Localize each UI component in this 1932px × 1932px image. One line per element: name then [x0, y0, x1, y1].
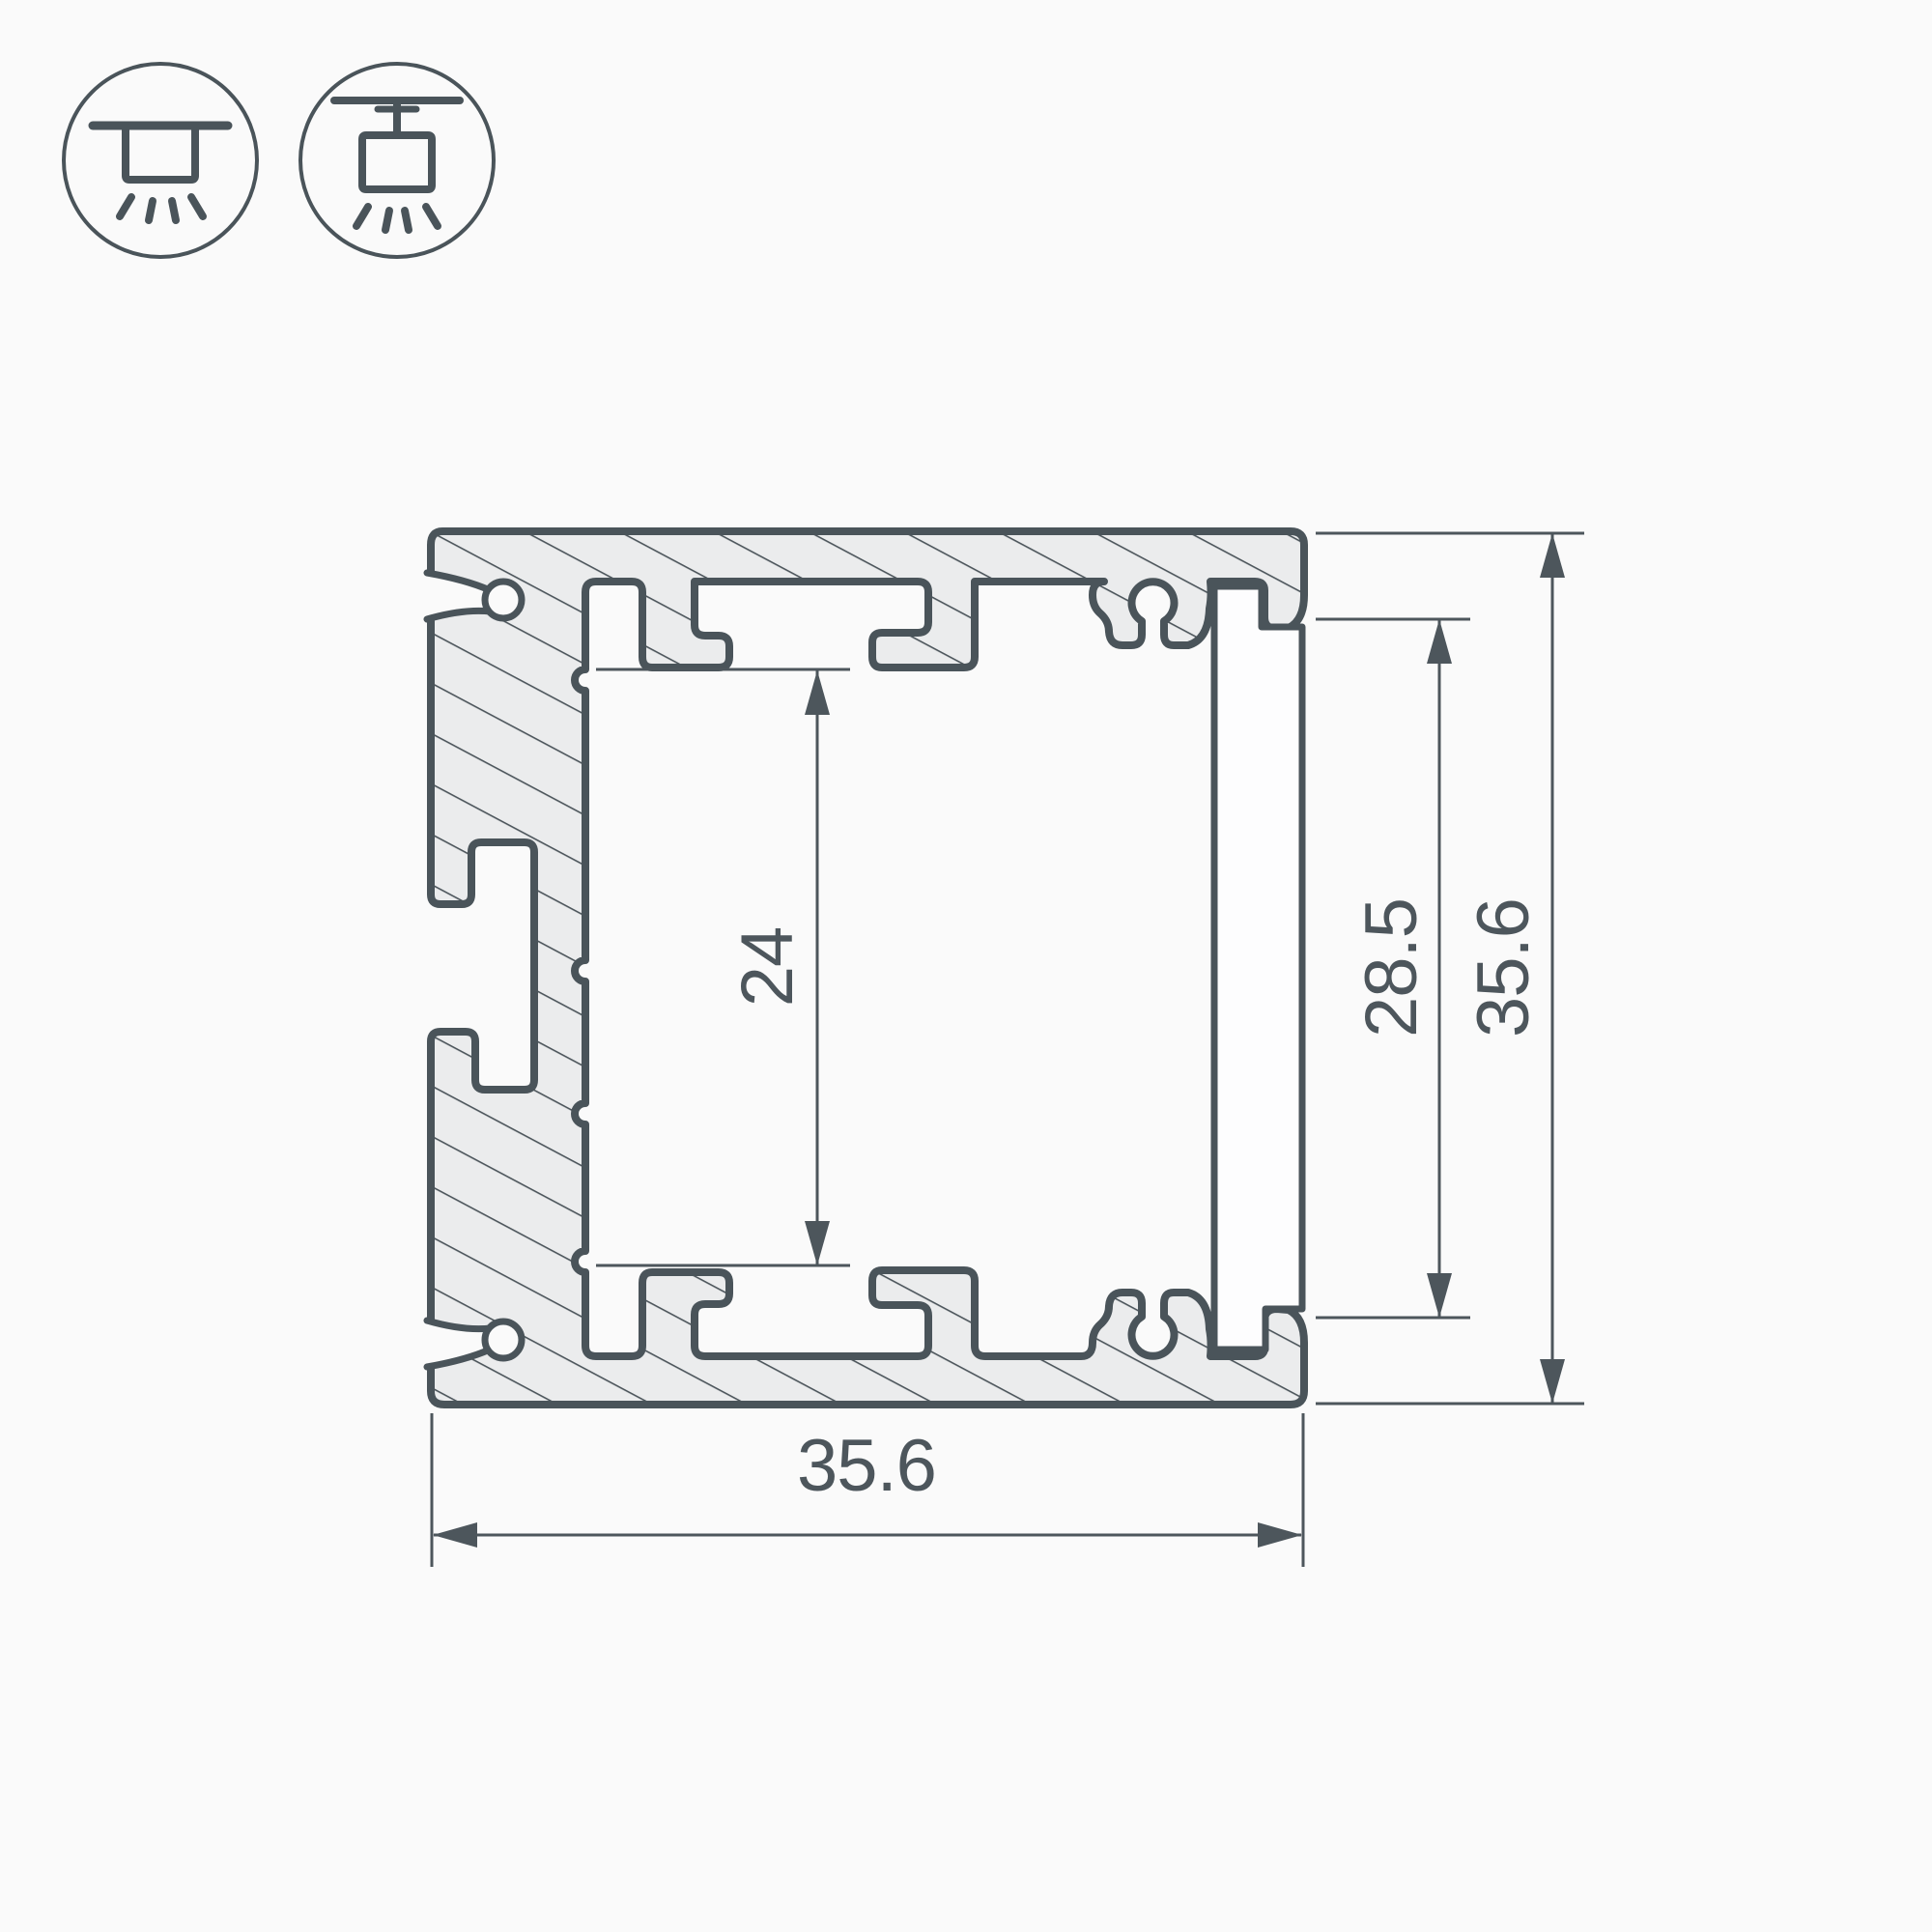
dim-label-overall-height: 35.6	[1463, 898, 1545, 1037]
mount-icons	[64, 64, 494, 257]
dimension-overall-width: 35.6	[432, 1413, 1303, 1567]
cover-plate	[1214, 586, 1302, 1350]
dim-label-window-height: 28.5	[1350, 898, 1433, 1037]
aluminium-section	[431, 531, 1304, 1405]
dim-label-inner-height: 24	[726, 927, 809, 1008]
clip-hole-top-icon	[485, 582, 522, 618]
profile-cross-section-drawing: 24 28.5 35.6 35.6	[0, 0, 1932, 1932]
clip-hole-bottom-icon	[485, 1321, 522, 1358]
surface-mount-icon	[64, 64, 257, 257]
pendant-mount-icon	[300, 64, 494, 257]
dimension-inner-height: 24	[596, 669, 850, 1265]
dimension-window-height: 28.5	[1316, 619, 1470, 1318]
drawing-page: 24 28.5 35.6 35.6	[0, 0, 1932, 1932]
profile-body	[425, 531, 1304, 1405]
dim-label-overall-width: 35.6	[797, 1425, 936, 1507]
